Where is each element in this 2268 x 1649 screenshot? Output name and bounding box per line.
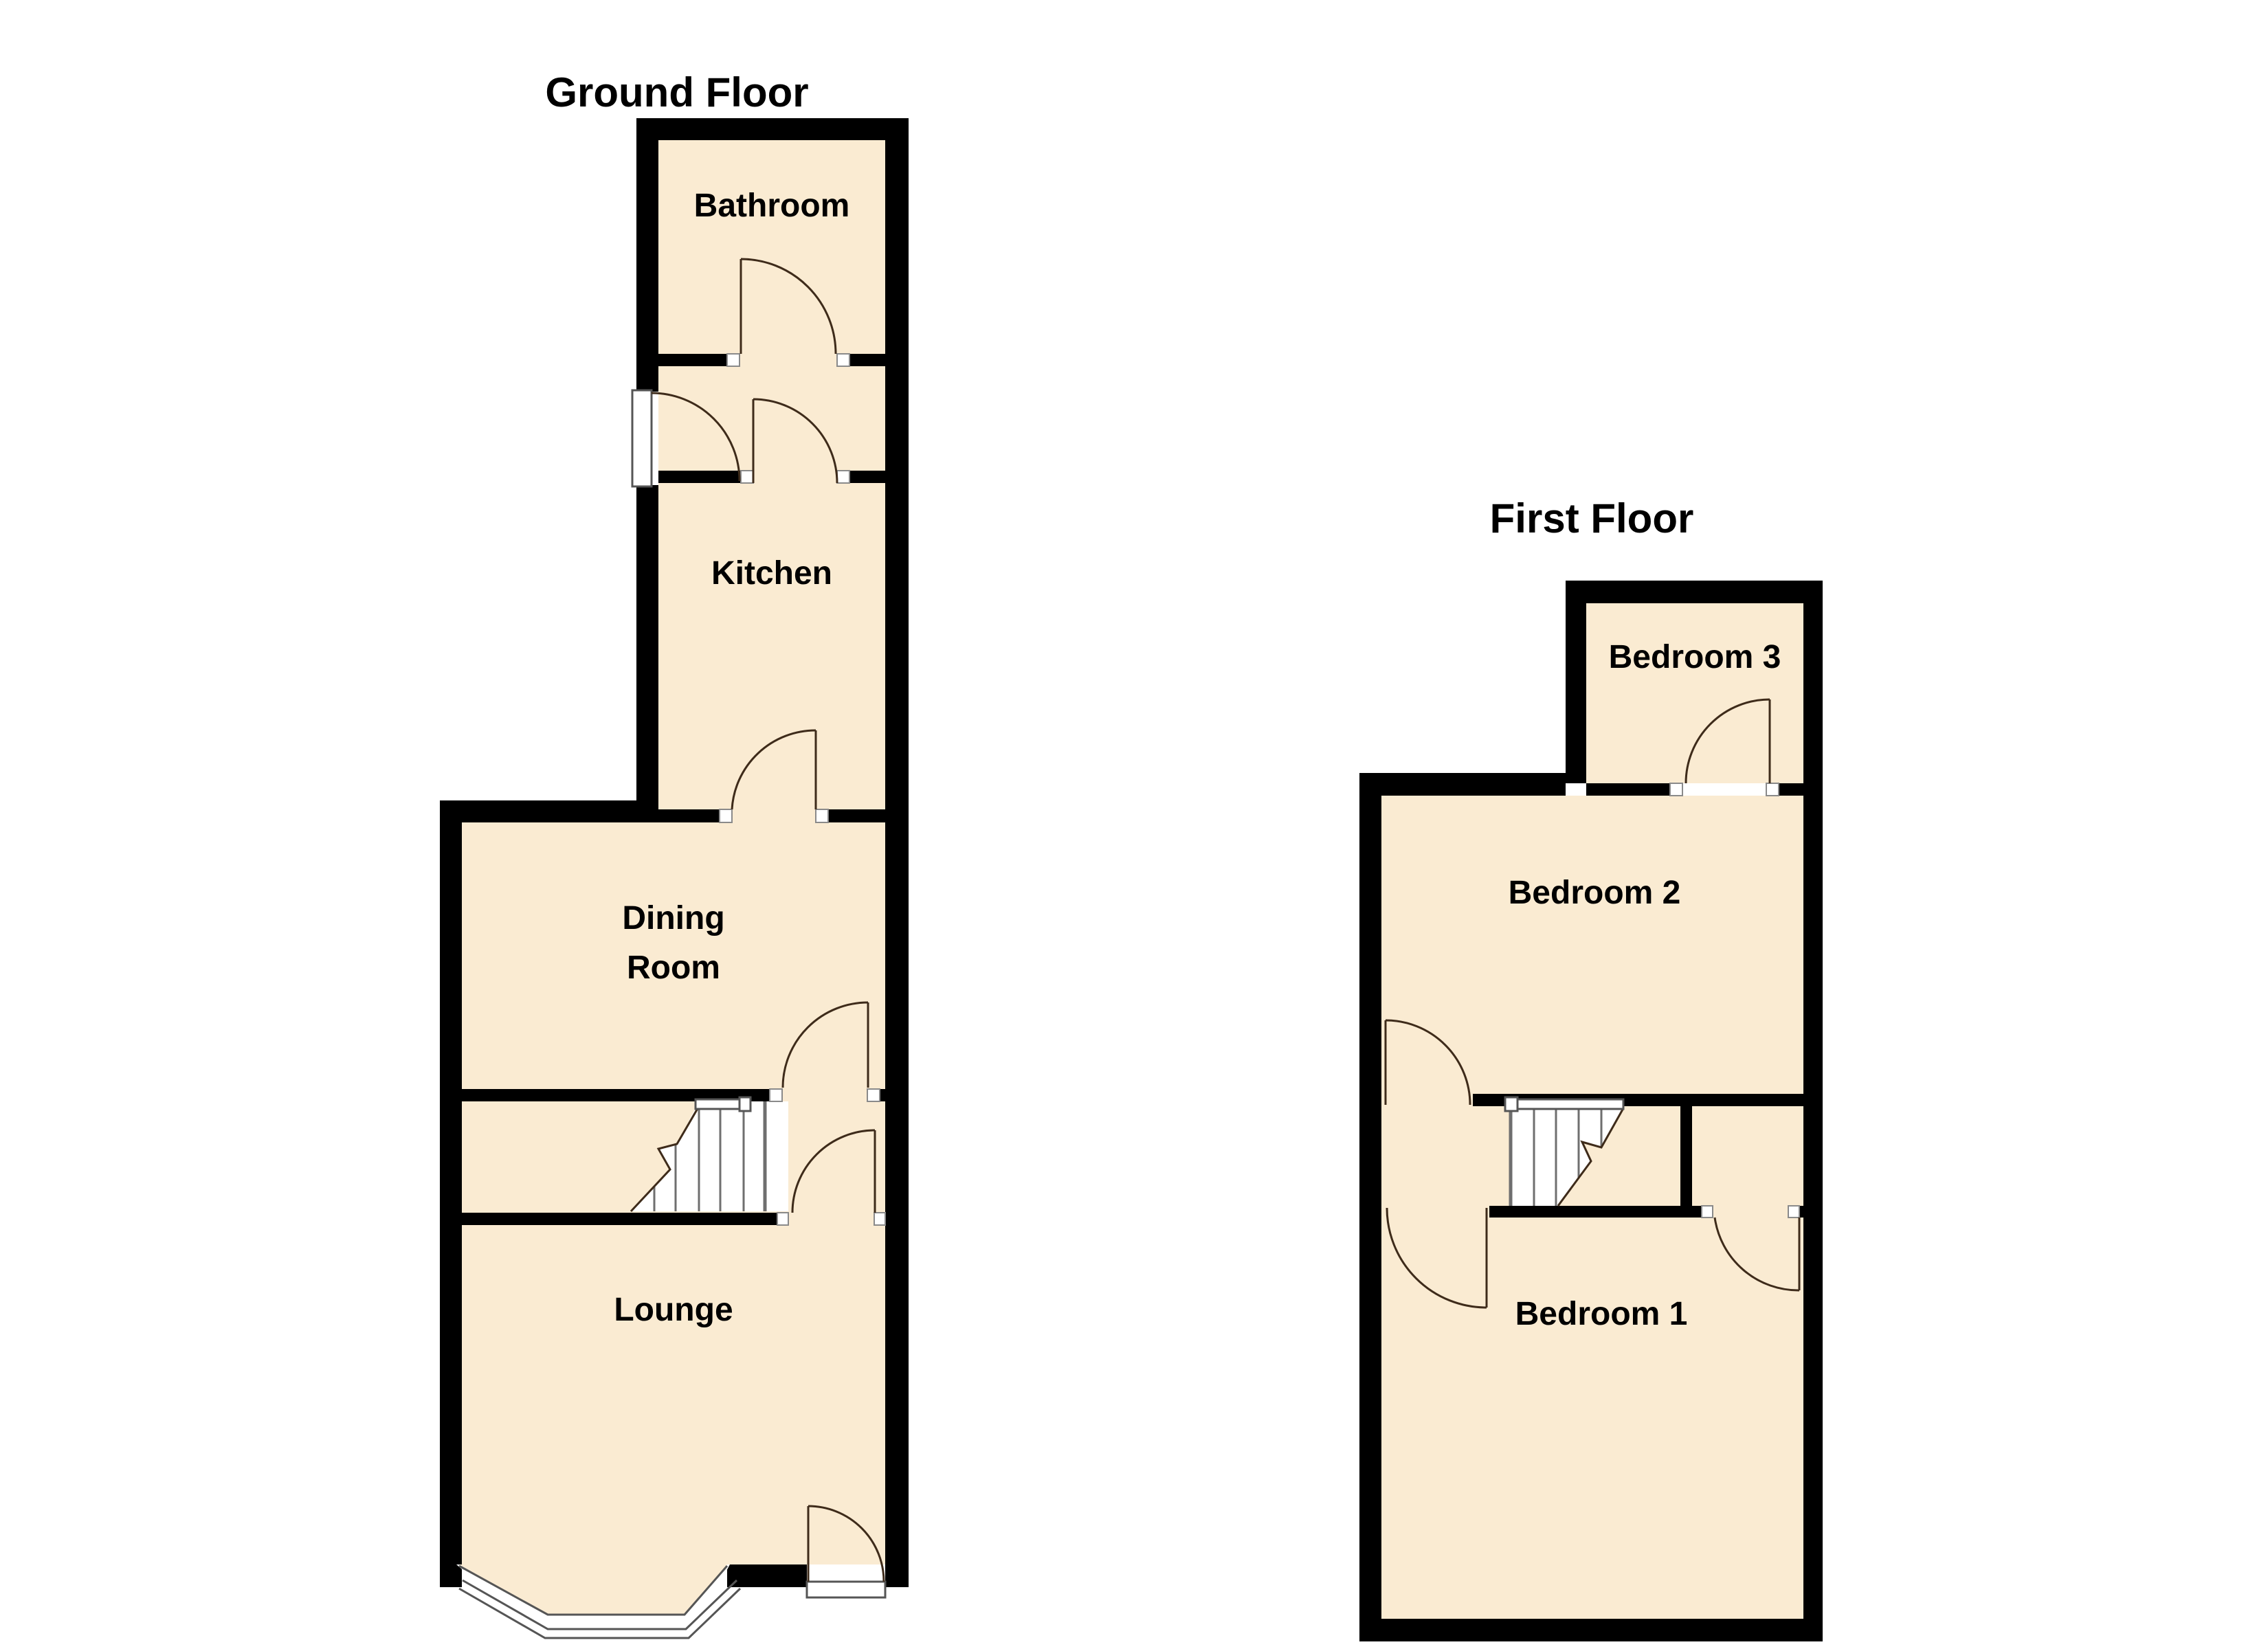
- door-jamb: [1766, 783, 1779, 796]
- floorplan-drawing: Ground Floor: [0, 0, 2268, 1649]
- door-jamb: [837, 354, 849, 366]
- stair-handrail: [1516, 1099, 1623, 1109]
- wall: [1489, 1206, 1713, 1218]
- wall: [1566, 581, 1586, 783]
- door-jamb: [727, 354, 740, 366]
- door-jamb: [816, 809, 828, 822]
- door-jamb: [837, 471, 849, 483]
- stair-newel-post: [740, 1097, 751, 1111]
- door-jamb: [741, 471, 753, 483]
- ground-floor-areas: [462, 140, 885, 1564]
- wall: [880, 1089, 885, 1101]
- wall: [440, 1564, 459, 1587]
- first-floor-title: First Floor: [1490, 495, 1694, 541]
- wall: [636, 118, 909, 140]
- door-jamb: [867, 1089, 880, 1101]
- wall: [849, 354, 885, 366]
- lounge-label: Lounge: [614, 1292, 733, 1328]
- wall: [849, 471, 885, 483]
- ground-floor-title: Ground Floor: [545, 69, 808, 115]
- wall: [1359, 773, 1566, 796]
- door-jamb: [1788, 1206, 1799, 1218]
- wall: [1680, 1106, 1692, 1206]
- wall: [1803, 581, 1823, 1641]
- floorplan-page: Ground Floor: [0, 0, 2268, 1649]
- door-jamb: [720, 809, 732, 822]
- wall: [440, 800, 656, 822]
- wall: [727, 1564, 807, 1587]
- wall: [1359, 1619, 1823, 1641]
- dining-room-label-line1: Dining: [622, 900, 724, 936]
- wall: [440, 800, 462, 1587]
- stair-newel-post: [1505, 1097, 1517, 1111]
- door-jamb: [1702, 1206, 1713, 1218]
- wall: [658, 471, 741, 483]
- bedroom3-label: Bedroom 3: [1609, 639, 1781, 675]
- first-floor-stairs: [1505, 1097, 1623, 1206]
- wall: [1566, 581, 1823, 603]
- bedroom1-label: Bedroom 1: [1515, 1296, 1688, 1332]
- wall: [658, 354, 727, 366]
- door-jamb: [777, 1213, 788, 1225]
- door-jamb: [874, 1213, 885, 1225]
- wall: [1779, 783, 1803, 796]
- floor-area-bedroom3: [1586, 603, 1803, 783]
- ground-floor-plan: Ground Floor: [440, 69, 909, 1639]
- wall: [462, 1213, 777, 1225]
- wall: [1359, 773, 1381, 1641]
- wall: [656, 809, 720, 822]
- bathroom-label: Bathroom: [694, 188, 850, 224]
- wall: [828, 809, 885, 822]
- door-jamb: [1670, 783, 1682, 796]
- ground-floor-stairs: [631, 1097, 788, 1211]
- wall: [1586, 783, 1670, 796]
- dining-room-label-line2: Room: [627, 950, 720, 986]
- door-threshold: [807, 1582, 885, 1597]
- stair-handrail: [696, 1099, 741, 1109]
- first-floor-plan: First Floor: [1359, 495, 1823, 1641]
- wall: [885, 118, 909, 1587]
- kitchen-label: Kitchen: [711, 555, 832, 592]
- bedroom2-label: Bedroom 2: [1509, 875, 1681, 911]
- bay-window: [456, 1564, 740, 1639]
- door-jamb: [770, 1089, 782, 1101]
- door-leaf-panel: [632, 390, 652, 486]
